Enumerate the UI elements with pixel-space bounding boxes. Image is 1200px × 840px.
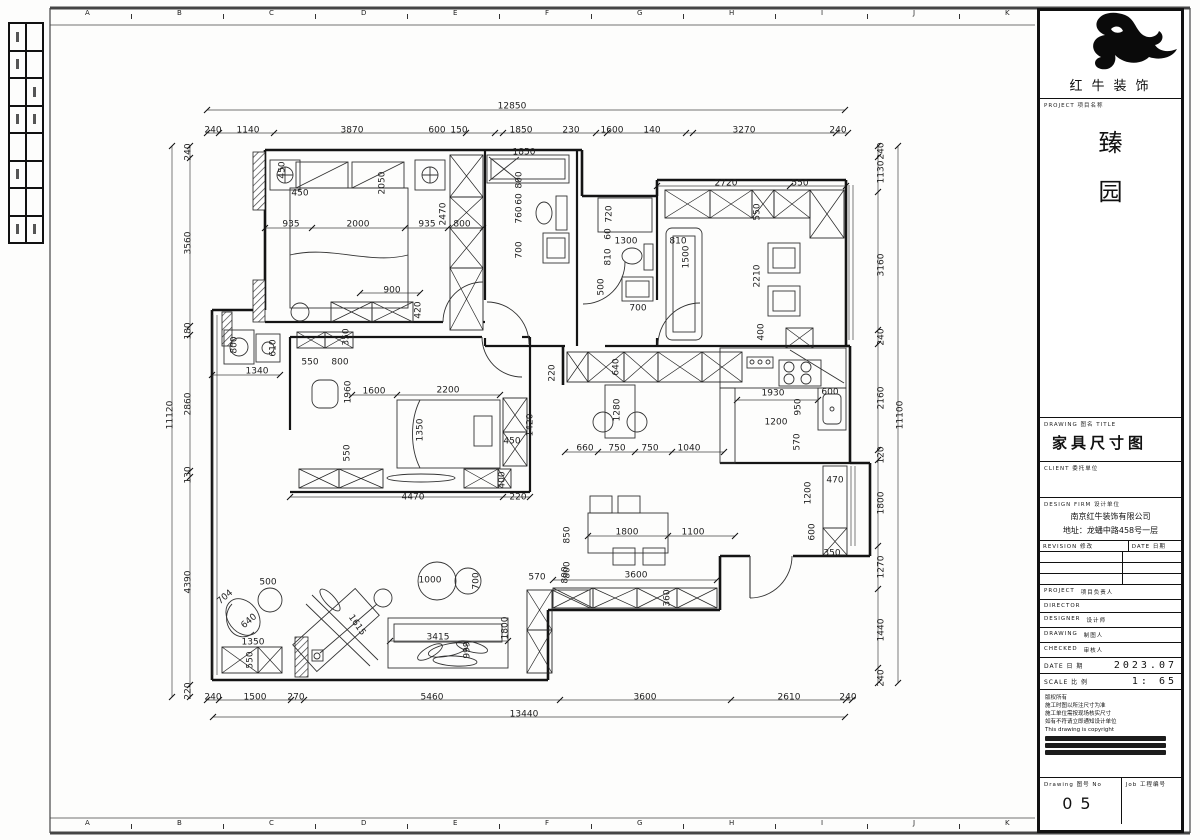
svg-text:1100: 1100 bbox=[682, 528, 705, 538]
svg-text:3270: 3270 bbox=[733, 126, 756, 136]
svg-text:2470: 2470 bbox=[439, 202, 449, 225]
svg-text:700: 700 bbox=[472, 572, 482, 589]
grid-letter: K bbox=[1005, 819, 1010, 827]
svg-text:5460: 5460 bbox=[421, 693, 444, 703]
svg-text:570: 570 bbox=[793, 433, 803, 450]
svg-text:660: 660 bbox=[576, 444, 593, 454]
svg-text:1500: 1500 bbox=[244, 693, 267, 703]
svg-text:420: 420 bbox=[414, 301, 424, 318]
svg-text:11100: 11100 bbox=[896, 400, 906, 429]
grid-letter: H bbox=[729, 819, 734, 827]
grid-ruler-bottom: ABCDEFGHIJK bbox=[50, 819, 1035, 835]
firm-label: DESIGN FIRM 设计单位 bbox=[1040, 498, 1181, 508]
svg-text:470: 470 bbox=[826, 476, 843, 486]
svg-text:750: 750 bbox=[608, 444, 625, 454]
client-label: CLIENT 委托单位 bbox=[1040, 462, 1181, 472]
revision-table: REVISION 修改 DATE 日期 bbox=[1040, 541, 1181, 585]
svg-text:1000: 1000 bbox=[419, 576, 442, 586]
project-label: PROJECT 项目名称 bbox=[1040, 99, 1181, 109]
svg-text:550: 550 bbox=[246, 651, 256, 668]
svg-text:13440: 13440 bbox=[510, 710, 539, 720]
svg-text:550: 550 bbox=[791, 179, 808, 189]
svg-text:1040: 1040 bbox=[678, 444, 701, 454]
row-project-director: PROJECT项目负责人 bbox=[1040, 585, 1181, 600]
svg-text:240: 240 bbox=[829, 126, 846, 136]
svg-text:1350: 1350 bbox=[416, 418, 426, 441]
svg-text:1340: 1340 bbox=[246, 367, 269, 377]
grid-letter: E bbox=[453, 819, 457, 827]
svg-text:550: 550 bbox=[753, 203, 763, 220]
firm-name: 南京红牛装饰有限公司 bbox=[1040, 511, 1181, 522]
svg-text:2610: 2610 bbox=[778, 693, 801, 703]
svg-text:3560: 3560 bbox=[184, 231, 194, 254]
grid-letter: A bbox=[85, 819, 90, 827]
svg-text:550: 550 bbox=[343, 444, 353, 461]
svg-text:640: 640 bbox=[240, 612, 260, 631]
svg-text:240: 240 bbox=[839, 693, 856, 703]
grid-letter: K bbox=[1005, 9, 1010, 17]
svg-text:400: 400 bbox=[498, 471, 508, 488]
svg-text:850: 850 bbox=[563, 526, 573, 543]
grid-letter: I bbox=[821, 819, 823, 827]
svg-text:700: 700 bbox=[515, 241, 525, 258]
svg-text:610: 610 bbox=[269, 339, 279, 356]
grid-letter: G bbox=[637, 9, 642, 17]
svg-text:3160: 3160 bbox=[877, 253, 887, 276]
svg-text:240: 240 bbox=[877, 669, 887, 686]
dimension-labels-layer: 1285024011403870600150185023016001403270… bbox=[166, 102, 906, 720]
svg-text:750: 750 bbox=[641, 444, 658, 454]
grid-letter: G bbox=[637, 819, 642, 827]
company-name: 红牛装饰 bbox=[1040, 73, 1181, 99]
svg-text:350: 350 bbox=[823, 549, 840, 559]
project-name: 臻 园 bbox=[1040, 123, 1181, 418]
client-section: CLIENT 委托单位 bbox=[1040, 462, 1181, 498]
svg-text:704: 704 bbox=[216, 588, 236, 607]
svg-text:1280: 1280 bbox=[613, 398, 623, 421]
svg-text:240: 240 bbox=[877, 328, 887, 345]
svg-text:140: 140 bbox=[643, 126, 660, 136]
svg-text:180: 180 bbox=[184, 322, 194, 339]
svg-text:640: 640 bbox=[612, 358, 622, 375]
svg-text:3600: 3600 bbox=[634, 693, 657, 703]
svg-text:1850: 1850 bbox=[513, 148, 536, 158]
grid-letter: J bbox=[913, 9, 915, 17]
grid-letter: B bbox=[177, 819, 182, 827]
svg-text:120: 120 bbox=[877, 446, 887, 463]
svg-text:230: 230 bbox=[562, 126, 579, 136]
svg-text:240: 240 bbox=[877, 142, 887, 159]
svg-text:220: 220 bbox=[548, 364, 558, 381]
svg-text:1200: 1200 bbox=[765, 418, 788, 428]
svg-text:800: 800 bbox=[515, 171, 525, 188]
row-director: DIRECTOR bbox=[1040, 600, 1181, 613]
svg-text:1140: 1140 bbox=[237, 126, 260, 136]
grid-letter: F bbox=[545, 819, 549, 827]
svg-text:240: 240 bbox=[204, 693, 221, 703]
svg-text:1500: 1500 bbox=[682, 245, 692, 268]
title-block: 红牛装饰 PROJECT 项目名称 臻 园 DRAWING 图名 TITLE 家… bbox=[1037, 8, 1184, 833]
svg-text:810: 810 bbox=[604, 248, 614, 265]
svg-text:800: 800 bbox=[563, 561, 573, 578]
svg-text:550: 550 bbox=[301, 358, 318, 368]
svg-text:500: 500 bbox=[259, 578, 276, 588]
svg-text:600: 600 bbox=[428, 126, 445, 136]
grid-letter: H bbox=[729, 9, 734, 17]
svg-text:999: 999 bbox=[463, 641, 473, 658]
svg-text:1800: 1800 bbox=[877, 491, 887, 514]
job-no-label: Job 工程编号 bbox=[1126, 782, 1166, 788]
svg-text:220: 220 bbox=[184, 682, 194, 699]
svg-text:4470: 4470 bbox=[402, 493, 425, 503]
svg-text:240: 240 bbox=[204, 126, 221, 136]
scale-row: SCALE 比 例 1: 65 bbox=[1040, 674, 1181, 690]
grid-letter: B bbox=[177, 9, 182, 17]
svg-text:600: 600 bbox=[821, 388, 838, 398]
row-drawing: DRAWING制图人 bbox=[1040, 628, 1181, 643]
svg-text:270: 270 bbox=[287, 693, 304, 703]
svg-text:1600: 1600 bbox=[363, 387, 386, 397]
grid-letter: C bbox=[269, 819, 274, 827]
svg-text:1300: 1300 bbox=[615, 237, 638, 247]
svg-text:760: 760 bbox=[515, 206, 525, 223]
grid-letter: I bbox=[821, 9, 823, 17]
svg-text:1350: 1350 bbox=[242, 638, 265, 648]
drawing-title: 家具尺寸图 bbox=[1040, 428, 1181, 461]
svg-text:500: 500 bbox=[597, 278, 607, 295]
svg-text:2160: 2160 bbox=[877, 386, 887, 409]
svg-text:2050: 2050 bbox=[378, 171, 388, 194]
svg-text:2860: 2860 bbox=[184, 392, 194, 415]
svg-text:810: 810 bbox=[669, 237, 686, 247]
grid-letter: D bbox=[361, 9, 366, 17]
design-firm-section: DESIGN FIRM 设计单位 南京红牛装饰有限公司 地址：龙蟠中路458号一… bbox=[1040, 498, 1181, 541]
row-designer: DESIGNER设计师 bbox=[1040, 613, 1181, 628]
grid-letter: A bbox=[85, 9, 90, 17]
svg-text:350: 350 bbox=[342, 328, 352, 345]
svg-text:240: 240 bbox=[184, 143, 194, 160]
drawing-title-label: DRAWING 图名 TITLE bbox=[1040, 418, 1181, 428]
svg-text:720: 720 bbox=[605, 205, 615, 222]
company-logo-bull bbox=[1040, 11, 1181, 73]
svg-text:900: 900 bbox=[383, 286, 400, 296]
row-checked: CHECKED审核人 bbox=[1040, 643, 1181, 658]
svg-text:450: 450 bbox=[278, 161, 288, 178]
svg-text:450: 450 bbox=[291, 189, 308, 199]
svg-text:11120: 11120 bbox=[166, 400, 176, 429]
svg-text:4390: 4390 bbox=[184, 570, 194, 593]
svg-text:1420: 1420 bbox=[526, 413, 536, 436]
svg-text:570: 570 bbox=[528, 573, 545, 583]
svg-text:60: 60 bbox=[515, 193, 525, 205]
svg-text:1270: 1270 bbox=[877, 555, 887, 578]
grid-ruler-top: ABCDEFGHIJK bbox=[50, 9, 1035, 25]
svg-text:150: 150 bbox=[450, 126, 467, 136]
svg-text:1960: 1960 bbox=[344, 380, 354, 403]
drawing-number-section: Drawing 图号 No 05 Job 工程编号 bbox=[1040, 778, 1181, 824]
firm-address: 地址：龙蟠中路458号一层 bbox=[1040, 525, 1181, 536]
revision-date-label: DATE 日期 bbox=[1129, 541, 1181, 551]
drawing-no: 05 bbox=[1044, 794, 1117, 813]
svg-text:2720: 2720 bbox=[715, 179, 738, 189]
svg-text:950: 950 bbox=[794, 398, 804, 415]
grid-letter: E bbox=[453, 9, 457, 17]
svg-text:1800: 1800 bbox=[616, 528, 639, 538]
date-value: 2023.07 bbox=[1114, 660, 1177, 671]
date-row: DATE 日 期 2023.07 bbox=[1040, 658, 1181, 674]
svg-text:3600: 3600 bbox=[625, 571, 648, 581]
svg-text:1850: 1850 bbox=[510, 126, 533, 136]
svg-text:800: 800 bbox=[331, 358, 348, 368]
svg-text:450: 450 bbox=[503, 437, 520, 447]
svg-text:1800: 1800 bbox=[501, 616, 511, 639]
grid-letter: F bbox=[545, 9, 549, 17]
grid-letter: J bbox=[913, 819, 915, 827]
svg-text:935: 935 bbox=[418, 220, 435, 230]
drawing-no-label: Drawing 图号 No bbox=[1044, 782, 1102, 788]
svg-text:600: 600 bbox=[808, 523, 818, 540]
svg-text:12850: 12850 bbox=[498, 102, 527, 112]
svg-text:800: 800 bbox=[230, 336, 240, 353]
svg-text:360: 360 bbox=[663, 589, 673, 606]
svg-text:1600: 1600 bbox=[601, 126, 624, 136]
svg-text:2200: 2200 bbox=[437, 386, 460, 396]
svg-text:935: 935 bbox=[282, 220, 299, 230]
svg-text:3415: 3415 bbox=[427, 633, 450, 643]
svg-text:2210: 2210 bbox=[753, 264, 763, 287]
svg-text:3870: 3870 bbox=[341, 126, 364, 136]
svg-text:1930: 1930 bbox=[762, 389, 785, 399]
svg-text:1200: 1200 bbox=[804, 481, 814, 504]
revision-label: REVISION 修改 bbox=[1040, 541, 1129, 551]
floor-plan-svg: 1285024011403870600150185023016001403270… bbox=[0, 0, 1200, 840]
svg-text:700: 700 bbox=[629, 304, 646, 314]
svg-text:130: 130 bbox=[184, 466, 194, 483]
grid-letter: D bbox=[361, 819, 366, 827]
scale-value: 1: 65 bbox=[1132, 676, 1177, 687]
svg-text:2000: 2000 bbox=[347, 220, 370, 230]
copyright-notes: 版权所有 施工时图以所注尺寸为准 施工单位需按现场核实尺寸 如有不符请立即通知设… bbox=[1040, 690, 1181, 778]
svg-text:1130: 1130 bbox=[877, 160, 887, 183]
svg-text:220: 220 bbox=[509, 493, 526, 503]
drawing-title-section: DRAWING 图名 TITLE 家具尺寸图 bbox=[1040, 418, 1181, 462]
grid-letter: C bbox=[269, 9, 274, 17]
svg-text:800: 800 bbox=[453, 220, 470, 230]
fold-marks bbox=[8, 22, 44, 244]
svg-text:1440: 1440 bbox=[877, 618, 887, 641]
svg-text:400: 400 bbox=[757, 323, 767, 340]
drawing-sheet: 1285024011403870600150185023016001403270… bbox=[0, 0, 1200, 840]
svg-text:1615: 1615 bbox=[346, 613, 367, 637]
svg-text:60: 60 bbox=[604, 228, 614, 240]
